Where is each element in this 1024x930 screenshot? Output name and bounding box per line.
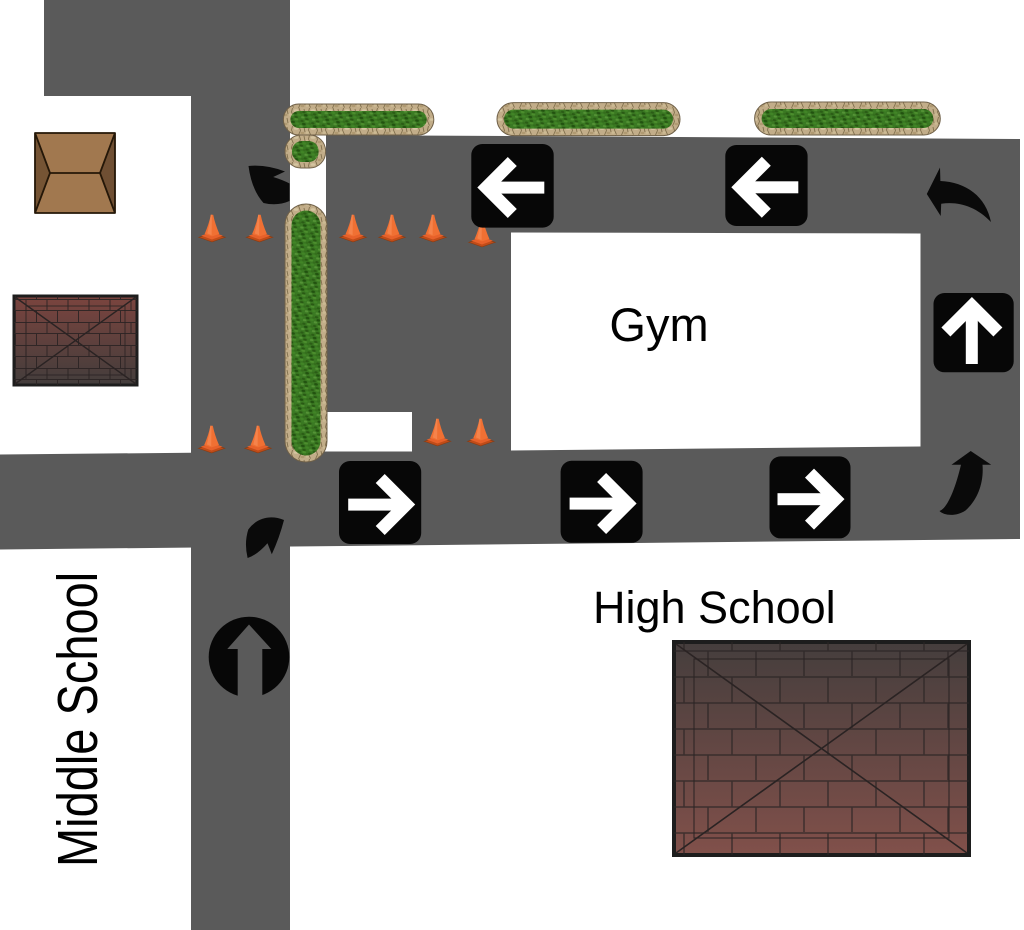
svg-text:Gym: Gym	[609, 298, 708, 351]
svg-text:Middle School: Middle School	[47, 572, 110, 867]
svg-text:High School: High School	[593, 582, 836, 633]
